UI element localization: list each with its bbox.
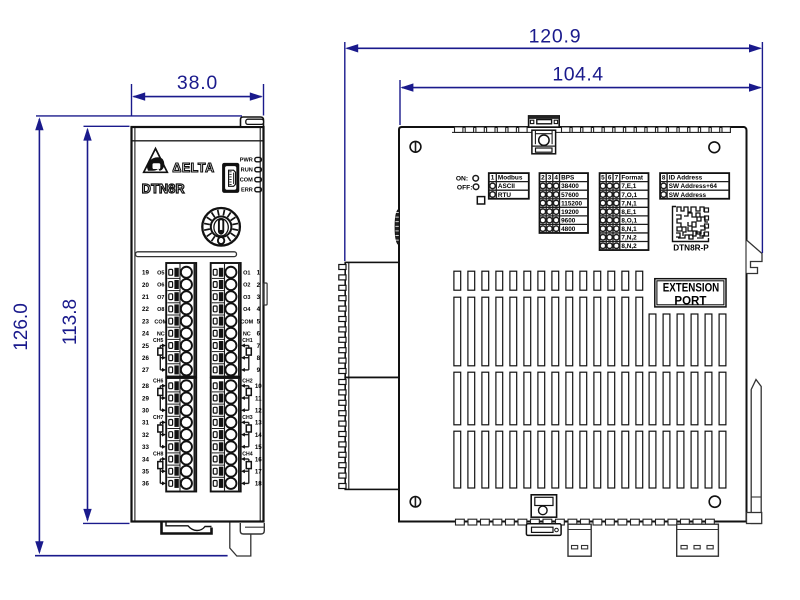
svg-text:35: 35 (142, 469, 149, 476)
svg-text:DTN8R-P: DTN8R-P (673, 244, 709, 253)
svg-text:25: 25 (142, 343, 149, 350)
svg-text:CH2: CH2 (242, 378, 252, 384)
svg-text:23: 23 (142, 318, 149, 325)
svg-text:NC: NC (243, 332, 251, 338)
svg-text:19: 19 (142, 270, 149, 277)
svg-text:17: 17 (255, 469, 262, 476)
svg-text:8: 8 (257, 355, 261, 362)
svg-text:ID Address: ID Address (669, 175, 703, 182)
svg-text:126.0: 126.0 (11, 303, 32, 351)
svg-text:11: 11 (255, 395, 262, 402)
svg-text:38400: 38400 (561, 183, 579, 190)
svg-text:O7: O7 (157, 295, 164, 301)
svg-text:10: 10 (255, 383, 262, 390)
svg-text:PORT: PORT (674, 293, 707, 307)
svg-text:O4: O4 (243, 307, 251, 313)
svg-text:1: 1 (491, 175, 495, 182)
svg-text:O2: O2 (243, 283, 250, 289)
svg-text:ASCII: ASCII (498, 183, 515, 190)
svg-text:CH1: CH1 (242, 338, 252, 344)
svg-text:26: 26 (142, 355, 149, 362)
svg-text:31: 31 (142, 420, 149, 427)
svg-text:28: 28 (142, 383, 149, 390)
svg-text:7,E,1: 7,E,1 (621, 183, 636, 190)
svg-text:32: 32 (142, 432, 149, 439)
svg-text:COM: COM (154, 319, 167, 325)
svg-text:O5: O5 (157, 271, 164, 277)
svg-text:4800: 4800 (561, 226, 576, 233)
svg-text:34: 34 (142, 456, 149, 463)
svg-text:ERR: ERR (241, 188, 253, 194)
svg-text:RUN: RUN (241, 168, 253, 174)
svg-text:CH7: CH7 (153, 415, 163, 421)
svg-text:30: 30 (142, 408, 149, 415)
svg-text:5: 5 (257, 318, 261, 325)
svg-text:7,N,2: 7,N,2 (621, 235, 637, 242)
svg-text:SW Address: SW Address (669, 192, 707, 199)
svg-text:29: 29 (142, 395, 149, 402)
svg-text:9600: 9600 (561, 217, 576, 224)
svg-text:COM: COM (240, 178, 253, 184)
svg-text:15: 15 (255, 444, 262, 451)
svg-text:115200: 115200 (561, 200, 582, 207)
svg-text:13: 13 (255, 420, 262, 427)
svg-text:1: 1 (257, 270, 261, 277)
svg-text:CH3: CH3 (242, 415, 252, 421)
svg-text:Modbus: Modbus (498, 175, 523, 182)
svg-text:O3: O3 (243, 295, 250, 301)
svg-text:4: 4 (257, 306, 261, 313)
svg-text:BPS: BPS (561, 175, 575, 182)
svg-text:CH4: CH4 (242, 452, 252, 458)
svg-text:9: 9 (257, 367, 261, 374)
svg-text:ON:: ON: (456, 176, 468, 183)
svg-text:2: 2 (257, 282, 261, 289)
svg-text:4: 4 (554, 175, 558, 182)
svg-text:33: 33 (142, 444, 149, 451)
svg-text:RTU: RTU (498, 192, 512, 199)
svg-text:36: 36 (142, 481, 149, 488)
svg-text:20: 20 (142, 282, 149, 289)
svg-text:OFF:: OFF: (457, 184, 473, 191)
svg-text:18: 18 (255, 481, 262, 488)
svg-text:8,N,2: 8,N,2 (621, 243, 637, 250)
svg-text:PWR: PWR (240, 158, 253, 164)
svg-text:57600: 57600 (561, 192, 579, 199)
svg-text:21: 21 (142, 294, 149, 301)
svg-text:14: 14 (255, 432, 262, 439)
svg-text:2: 2 (541, 175, 545, 182)
svg-text:NC: NC (157, 332, 165, 338)
svg-text:8,O,1: 8,O,1 (621, 217, 637, 224)
svg-text:7,O,1: 7,O,1 (621, 192, 637, 199)
svg-text:8,E,1: 8,E,1 (621, 209, 636, 216)
svg-text:113.8: 113.8 (60, 299, 81, 345)
svg-text:O1: O1 (243, 271, 250, 277)
svg-text:6: 6 (608, 175, 612, 182)
svg-text:7: 7 (257, 343, 261, 350)
svg-text:16: 16 (255, 456, 262, 463)
svg-text:SW Address+64: SW Address+64 (669, 183, 718, 190)
svg-text:O6: O6 (157, 283, 164, 289)
svg-text:38.0: 38.0 (177, 72, 218, 94)
svg-text:3: 3 (548, 175, 552, 182)
svg-text:DTN8R: DTN8R (142, 182, 185, 196)
svg-text:120.9: 120.9 (529, 26, 582, 48)
svg-text:5: 5 (601, 175, 605, 182)
svg-text:22: 22 (142, 306, 149, 313)
svg-text:24: 24 (142, 331, 149, 338)
svg-text:8: 8 (662, 175, 666, 182)
svg-text:7,N,1: 7,N,1 (621, 200, 637, 207)
svg-text:CH6: CH6 (153, 378, 163, 384)
svg-text:104.4: 104.4 (552, 64, 603, 86)
svg-text:COM: COM (240, 319, 253, 325)
svg-text:3: 3 (257, 294, 261, 301)
svg-text:CH5: CH5 (153, 338, 163, 344)
svg-text:12: 12 (255, 408, 262, 415)
svg-text:ΔELTA: ΔELTA (172, 161, 214, 175)
svg-text:O8: O8 (157, 307, 164, 313)
svg-text:8,N,1: 8,N,1 (621, 226, 637, 233)
svg-text:27: 27 (142, 367, 149, 374)
svg-text:7: 7 (615, 175, 619, 182)
svg-text:Format: Format (621, 175, 644, 182)
svg-text:6: 6 (257, 331, 261, 338)
svg-text:CH8: CH8 (153, 452, 163, 458)
svg-text:19200: 19200 (561, 209, 579, 216)
